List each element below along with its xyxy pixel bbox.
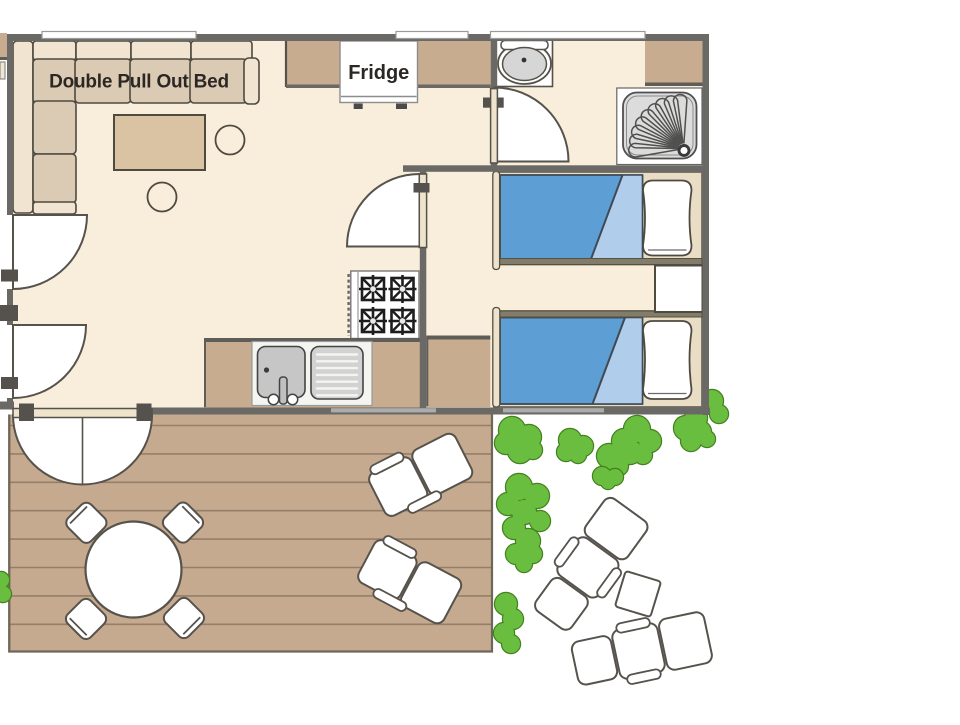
svg-text:Fridge: Fridge	[348, 62, 409, 84]
svg-text:Double Pull Out Bed: Double Pull Out Bed	[49, 72, 229, 93]
